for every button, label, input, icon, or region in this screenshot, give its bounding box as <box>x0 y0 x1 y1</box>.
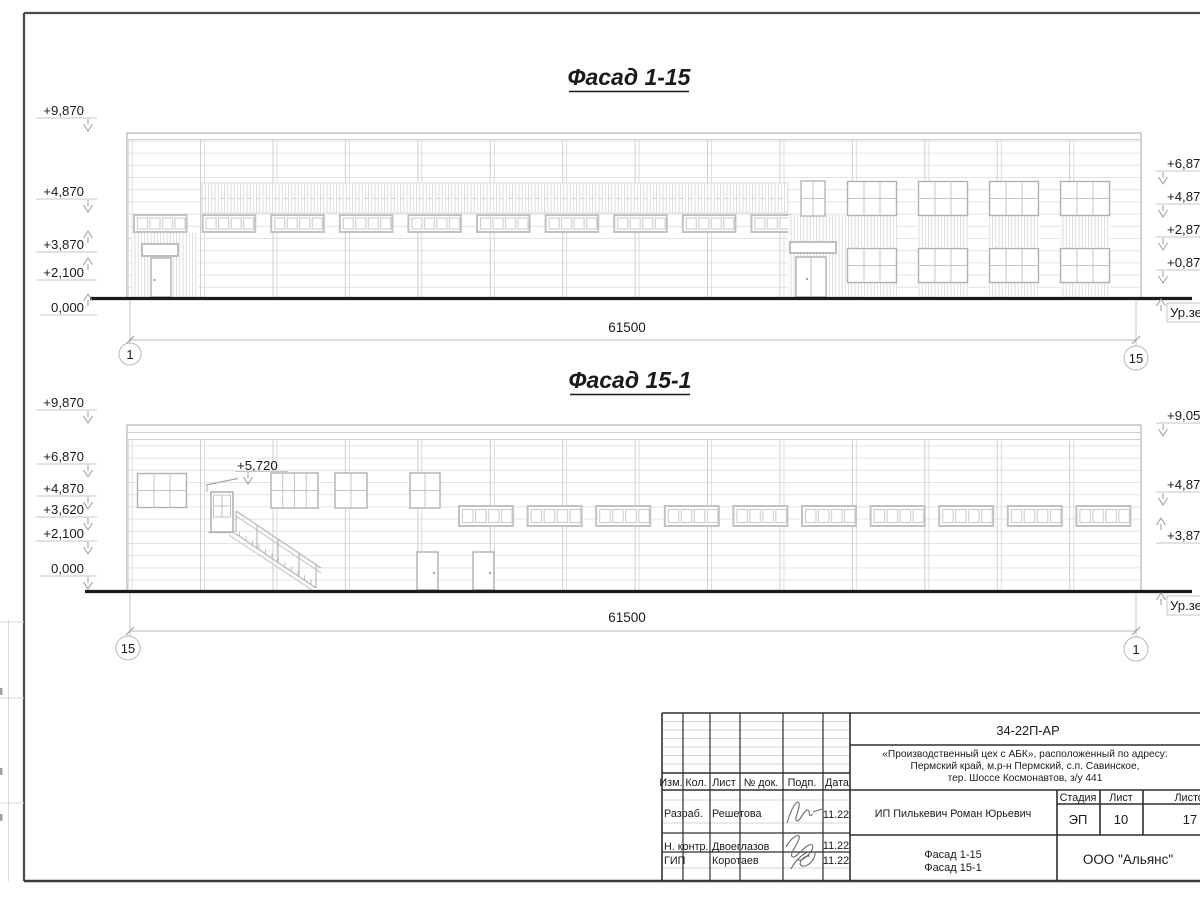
facade-1-15: Фасад 1-15 +9,87 <box>36 64 1200 370</box>
object-address-line: тер. Шоссе Космонавтов, з/у 441 <box>948 773 1103 784</box>
sheet-title-line: Фасад 15-1 <box>924 862 982 874</box>
col-header-list: Лист <box>712 777 736 789</box>
axis-bubble: 1 <box>1132 642 1139 657</box>
col-header-kol: Кол. <box>685 777 706 789</box>
stage-value: ЭП <box>1069 812 1088 827</box>
facade-15-1-dimension: 61500 15 1 <box>116 593 1148 661</box>
row-role: Н. контр. <box>664 841 709 853</box>
facade-15-1: Фасад 15-1 <box>36 367 1200 661</box>
document-code: 34-22П-АР <box>996 723 1059 738</box>
col-header-izm: Изм. <box>659 777 682 789</box>
elevation-mark: +0,87 <box>1167 255 1200 270</box>
sheet-label: Лист <box>1109 792 1133 804</box>
entrance-door <box>151 258 171 297</box>
elevation-mark: +9,05 <box>1167 408 1200 423</box>
client-name: ИП Пилькевич Роман Юрьевич <box>875 808 1032 820</box>
facade-1-15-title: Фасад 1-15 <box>568 64 692 90</box>
sheet-title-line: Фасад 1-15 <box>924 849 982 861</box>
axis-bubble: 15 <box>1129 351 1143 366</box>
elevation-mark: +6,870 <box>43 449 84 464</box>
object-address-line: «Производственный цех с АБК», расположен… <box>882 749 1167 760</box>
facade-15-1-marks-left: +9,870 +6,870 +4,870 +3,620 +2,100 0,000 <box>36 395 97 589</box>
ribbon-windows <box>458 505 1135 527</box>
ground-level-label: Ур.зе <box>1170 305 1200 320</box>
row-date: 11.22 <box>823 840 849 852</box>
facade-15-1-marks-right: +9,05 +4,87 +3,87 Ур.зе <box>1156 408 1200 615</box>
object-address-line: Пермский край, м.р-н Пермский, с.п. Сави… <box>911 761 1140 772</box>
elevation-mark: +2,87 <box>1167 222 1200 237</box>
organization-name: ООО "Альянс" <box>1083 852 1173 867</box>
row-date: 11.22 <box>823 809 849 821</box>
sheet-number: 10 <box>1114 812 1128 827</box>
entrance-door <box>473 552 494 590</box>
elevation-mark: +3,87 <box>1167 528 1200 543</box>
facade-1-15-building <box>90 133 1192 299</box>
facade-1-15-marks-left: +9,870 +4,870 +3,870 +2,100 0,000 <box>36 103 97 315</box>
elevation-mark: +9,870 <box>43 103 84 118</box>
col-header-dok: № док. <box>744 777 779 789</box>
axis-bubble: 1 <box>126 347 133 362</box>
sheet-margin-table <box>0 620 24 881</box>
sheets-label: Листов <box>1174 792 1200 804</box>
upper-windows <box>271 473 440 508</box>
elevation-mark: 0,000 <box>51 561 84 576</box>
ground-level-label: Ур.зе <box>1170 598 1200 613</box>
elevation-mark: +2,100 <box>43 526 84 541</box>
signature <box>786 802 822 869</box>
drawing-sheet: Фасад 1-15 +9,87 <box>0 0 1200 900</box>
row-name: Решетова <box>712 808 762 820</box>
axis-bubble: 15 <box>121 641 135 656</box>
facades-drawing: Фасад 1-15 +9,87 <box>0 0 1200 900</box>
entrance-canopy <box>142 244 178 256</box>
elevation-mark: +3,870 <box>43 237 84 252</box>
overall-dimension: 61500 <box>608 610 646 625</box>
col-header-data: Дата <box>825 777 849 789</box>
elevation-mark: +4,870 <box>43 481 84 496</box>
elevation-mark: +4,870 <box>43 184 84 199</box>
row-name: Двоеглазов <box>712 841 770 853</box>
facade-1-15-dimension: 61500 1 15 <box>119 300 1148 370</box>
facade-15-1-title: Фасад 15-1 <box>569 367 692 393</box>
elevation-mark: +2,100 <box>43 265 84 280</box>
facade-15-1-building <box>85 425 1192 592</box>
row-role: Разраб. <box>664 808 703 820</box>
ribbon-windows <box>133 214 791 233</box>
elevation-mark: +4,87 <box>1167 477 1200 492</box>
elevation-mark: +5,720 <box>237 458 278 473</box>
col-header-podp: Подп. <box>788 777 817 789</box>
elevation-mark: +4,87 <box>1167 189 1200 204</box>
row-role: ГИП <box>664 855 685 867</box>
stage-label: Стадия <box>1060 792 1097 804</box>
entrance-door <box>417 552 438 590</box>
elevation-mark: +9,870 <box>43 395 84 410</box>
entrance-canopy <box>790 242 836 253</box>
elevation-mark: +3,620 <box>43 502 84 517</box>
elevation-mark: +6,87 <box>1167 156 1200 171</box>
sheets-total: 17 <box>1183 812 1197 827</box>
row-date: 11.22 <box>823 855 849 867</box>
overall-dimension: 61500 <box>608 320 646 335</box>
title-block: Изм. Кол. Лист № док. Подп. Дата Разраб.… <box>659 713 1200 881</box>
elevation-mark: 0,000 <box>51 300 84 315</box>
row-name: Коротаев <box>712 855 759 867</box>
